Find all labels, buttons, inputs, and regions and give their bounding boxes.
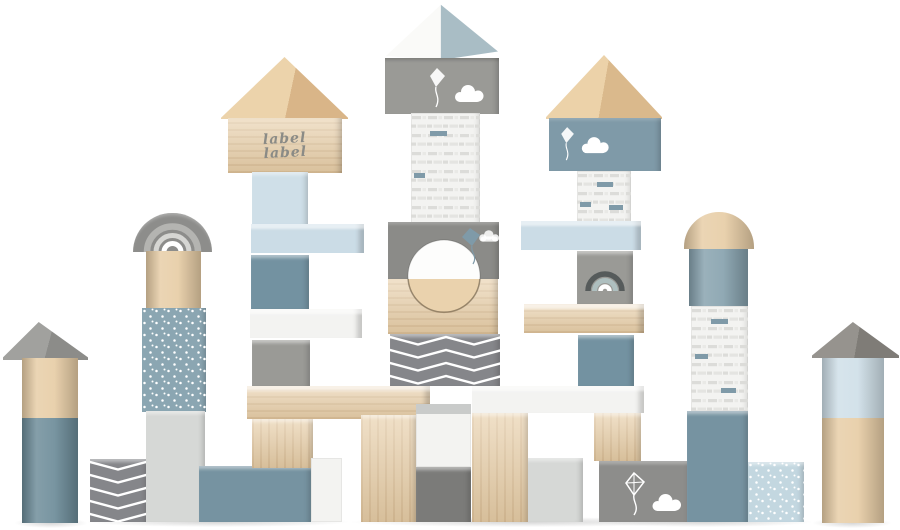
blue-long-block xyxy=(199,466,311,522)
wood-cylinder-block xyxy=(822,418,884,523)
label-house-body: label label xyxy=(228,118,342,173)
wood-cylinder-block xyxy=(146,251,201,309)
cloud-icon xyxy=(477,229,502,244)
birch-column-block xyxy=(411,113,480,223)
white-plank xyxy=(472,386,644,413)
birch-pattern xyxy=(411,113,480,223)
cloud-icon xyxy=(452,84,486,106)
label-stamp: label label xyxy=(227,129,342,163)
kite-icon xyxy=(425,67,451,109)
triangle-roof-block xyxy=(3,322,88,360)
dotted-cube-block xyxy=(748,462,804,522)
dotted-blue-block xyxy=(142,308,206,412)
chevron-cube-block xyxy=(90,459,148,522)
wood-dome-block xyxy=(684,212,754,249)
gray-cube xyxy=(252,340,310,386)
chevron-pattern xyxy=(90,459,148,522)
light-gray-block xyxy=(146,411,205,522)
cloud-icon xyxy=(649,493,684,515)
dots-pattern xyxy=(748,462,804,522)
birch-cube-block xyxy=(577,171,631,222)
dark-gray-cube-block xyxy=(416,467,471,522)
light-gray-cube-block xyxy=(528,458,583,522)
birch-pattern xyxy=(691,306,748,411)
wood-roof-block xyxy=(546,55,662,119)
steel-blue-cube xyxy=(251,255,309,309)
wood-column-block xyxy=(594,413,641,461)
wood-roof-block xyxy=(221,57,348,119)
building-blocks-photo: label label xyxy=(0,0,900,530)
triangle-roof-block xyxy=(812,322,899,358)
gray-kite-block xyxy=(385,58,499,114)
white-cube-block xyxy=(416,404,471,467)
light-blue-plank xyxy=(251,224,364,253)
light-blue-cylinder-block xyxy=(822,358,884,418)
wood-column-block xyxy=(472,413,528,522)
white-plank xyxy=(250,309,362,338)
light-blue-cube xyxy=(252,172,308,225)
wood-column-block xyxy=(361,415,416,522)
blue-base-block xyxy=(687,411,748,522)
kite-icon xyxy=(622,471,650,517)
blue-cylinder-block xyxy=(689,249,748,306)
rainbow-arch-block xyxy=(133,213,212,252)
light-blue-plank xyxy=(521,221,641,250)
stamp-line-2: label xyxy=(263,144,307,162)
blue-cylinder-block xyxy=(22,418,78,523)
wood-plank xyxy=(524,304,644,333)
birch-column-block xyxy=(691,306,748,411)
rainbow-icon xyxy=(133,213,212,252)
dots-pattern xyxy=(142,308,206,412)
chevron-block xyxy=(390,334,500,386)
birch-pattern xyxy=(577,171,631,222)
gray-kite-bottom-block xyxy=(599,461,691,522)
steel-blue-house-body xyxy=(549,118,661,171)
white-narrow-block xyxy=(311,458,342,522)
steel-blue-cube xyxy=(578,335,634,386)
rainbow-cube-block xyxy=(577,251,633,304)
wood-cube-block xyxy=(252,419,313,468)
chevron-pattern xyxy=(390,334,500,386)
cloud-icon xyxy=(579,136,611,157)
kite-icon xyxy=(557,124,579,164)
wood-cylinder-block xyxy=(22,358,78,419)
rainbow-icon xyxy=(577,251,633,304)
